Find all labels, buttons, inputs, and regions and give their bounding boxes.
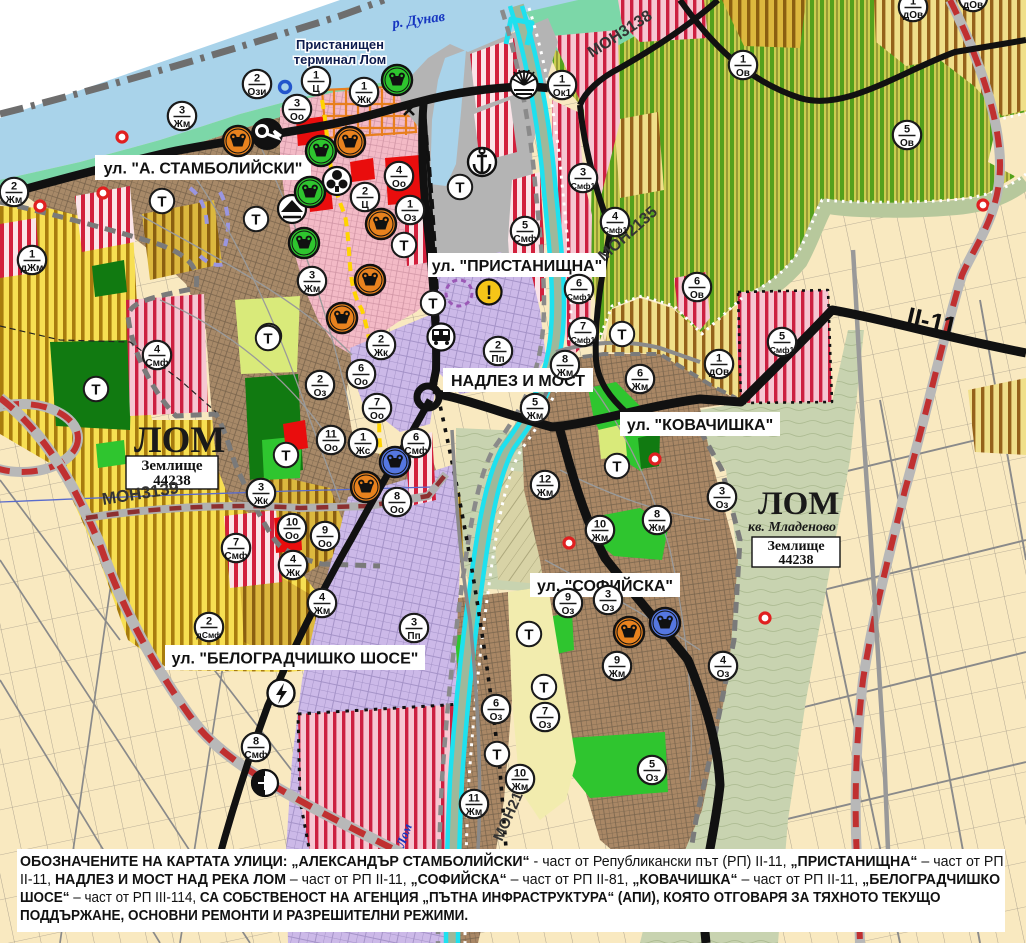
- svg-text:8: 8: [394, 491, 400, 503]
- svg-text:1: 1: [716, 353, 722, 365]
- svg-text:1: 1: [740, 54, 746, 66]
- svg-text:Оз: Оз: [490, 712, 503, 723]
- svg-text:Ц: Ц: [361, 200, 369, 211]
- svg-text:Жм: Жм: [631, 382, 648, 393]
- svg-text:ул. "А. СТАМБОЛИЙСКИ": ул. "А. СТАМБОЛИЙСКИ": [104, 158, 303, 177]
- svg-text:Смф1: Смф1: [571, 181, 596, 191]
- svg-text:5: 5: [522, 220, 528, 232]
- svg-text:Жм: Жм: [526, 411, 543, 422]
- svg-text:Т: Т: [492, 747, 501, 764]
- svg-text:Оо: Оо: [318, 539, 332, 550]
- svg-text:Жм: Жм: [536, 488, 553, 499]
- svg-text:терминал Лом: терминал Лом: [294, 52, 386, 67]
- svg-text:2: 2: [378, 334, 384, 346]
- svg-text:Оз: Оз: [717, 669, 730, 680]
- svg-text:Жм: Жм: [5, 195, 22, 206]
- svg-text:2: 2: [11, 181, 17, 193]
- svg-text:Оз: Оз: [646, 773, 659, 784]
- svg-text:6: 6: [637, 368, 643, 380]
- svg-text:44238: 44238: [779, 553, 814, 568]
- svg-text:Т: Т: [281, 448, 290, 465]
- svg-text:4: 4: [290, 554, 297, 566]
- svg-text:2: 2: [362, 186, 368, 198]
- svg-text:1: 1: [361, 81, 367, 93]
- svg-text:Смф: Смф: [244, 749, 267, 761]
- svg-text:8: 8: [253, 736, 259, 748]
- svg-text:Землище: Землище: [141, 458, 203, 474]
- svg-text:4: 4: [154, 344, 161, 356]
- svg-text:Оз: Оз: [716, 500, 729, 511]
- svg-text:9: 9: [614, 655, 620, 667]
- svg-text:Пп: Пп: [407, 631, 420, 642]
- svg-text:Жк: Жк: [373, 348, 389, 359]
- svg-text:3: 3: [179, 105, 185, 117]
- svg-text:11: 11: [468, 793, 480, 805]
- svg-text:3: 3: [294, 98, 300, 110]
- svg-text:3: 3: [580, 167, 586, 179]
- svg-text:Пп: Пп: [491, 354, 504, 365]
- svg-text:10: 10: [514, 768, 526, 780]
- svg-text:9: 9: [565, 592, 571, 604]
- svg-text:Т: Т: [455, 180, 464, 197]
- svg-text:Жм: Жм: [303, 284, 320, 295]
- svg-text:6: 6: [413, 432, 419, 444]
- svg-text:Т: Т: [91, 382, 100, 399]
- svg-text:2: 2: [206, 616, 212, 628]
- svg-text:Оз: Оз: [562, 606, 575, 617]
- svg-text:Жм: Жм: [173, 119, 190, 130]
- svg-text:5: 5: [532, 397, 538, 409]
- svg-text:Пристанищен: Пристанищен: [296, 37, 384, 52]
- svg-text:12: 12: [539, 474, 551, 486]
- svg-text:Смф1: Смф1: [770, 345, 795, 355]
- svg-text:3: 3: [719, 486, 725, 498]
- svg-text:Смф: Смф: [513, 233, 536, 245]
- svg-text:1: 1: [910, 0, 916, 8]
- svg-text:Ози: Ози: [248, 87, 267, 98]
- svg-text:ЛОМ: ЛОМ: [758, 486, 839, 522]
- svg-text:дЖм: дЖм: [21, 263, 44, 274]
- svg-text:Жм: Жм: [608, 669, 625, 680]
- svg-text:Т: Т: [524, 627, 533, 644]
- svg-text:Ц: Ц: [312, 84, 320, 95]
- svg-text:Смф: Смф: [224, 550, 247, 562]
- svg-text:Оз: Оз: [602, 603, 615, 614]
- svg-text:8: 8: [654, 509, 660, 521]
- svg-text:ул. "ПРИСТАНИЩНА": ул. "ПРИСТАНИЩНА": [432, 258, 603, 275]
- svg-text:Ок1: Ок1: [553, 88, 572, 99]
- svg-text:ОБОЗНАЧЕНИТЕ НА КАРТАТА УЛИЦИ:: ОБОЗНАЧЕНИТЕ НА КАРТАТА УЛИЦИ: „АЛЕКСАНД…: [20, 852, 1004, 870]
- svg-text:Т: Т: [428, 296, 437, 313]
- svg-text:4: 4: [612, 211, 619, 223]
- svg-text:5: 5: [779, 331, 785, 343]
- svg-text:4: 4: [720, 655, 727, 667]
- svg-text:3: 3: [605, 589, 611, 601]
- svg-text:2: 2: [254, 73, 260, 85]
- svg-text:4: 4: [396, 165, 403, 177]
- svg-text:6: 6: [694, 276, 700, 288]
- svg-text:ЛОМ: ЛОМ: [134, 420, 225, 461]
- svg-text:Смф1: Смф1: [571, 335, 596, 345]
- svg-text:7: 7: [542, 706, 548, 718]
- svg-text:Т: Т: [617, 327, 626, 344]
- svg-text:7: 7: [580, 321, 586, 333]
- svg-text:7: 7: [374, 397, 380, 409]
- svg-text:Смф: Смф: [145, 357, 168, 369]
- svg-text:Оо: Оо: [370, 411, 384, 422]
- svg-text:1: 1: [559, 74, 565, 86]
- svg-text:2: 2: [495, 340, 501, 352]
- svg-text:11: 11: [325, 429, 337, 441]
- svg-text:Т: Т: [157, 194, 166, 211]
- svg-text:Оо: Оо: [390, 505, 404, 516]
- svg-text:Оз: Оз: [314, 388, 327, 399]
- svg-text:Т: Т: [251, 212, 260, 229]
- svg-text:Оз: Оз: [404, 213, 417, 224]
- svg-text:Жм: Жм: [648, 523, 665, 534]
- svg-text:Т: Т: [263, 331, 272, 348]
- svg-text:Т: Т: [539, 680, 548, 697]
- svg-text:Жк: Жк: [253, 496, 269, 507]
- svg-text:10: 10: [594, 519, 606, 531]
- svg-text:3: 3: [411, 617, 417, 629]
- svg-text:Т: Т: [612, 459, 621, 476]
- svg-text:5: 5: [649, 759, 655, 771]
- svg-text:Оо: Оо: [324, 443, 338, 454]
- svg-text:ул. "КОВАЧИШКА": ул. "КОВАЧИШКА": [627, 417, 773, 434]
- svg-text:Жс: Жс: [355, 446, 371, 457]
- svg-text:Оо: Оо: [285, 531, 299, 542]
- svg-text:1: 1: [313, 70, 319, 82]
- svg-text:2: 2: [317, 374, 323, 386]
- svg-text:Жм: Жм: [556, 368, 573, 379]
- svg-text:6: 6: [358, 363, 364, 375]
- svg-text:дСмф: дСмф: [196, 630, 222, 640]
- svg-text:1: 1: [407, 199, 413, 211]
- svg-text:ШОСЕ“ – част от РП III-114, СА: ШОСЕ“ – част от РП III-114, СА СОБСТВЕНО…: [20, 888, 941, 905]
- svg-text:Жм: Жм: [313, 606, 330, 617]
- svg-text:Оз: Оз: [539, 720, 552, 731]
- svg-text:дОв: дОв: [709, 367, 729, 378]
- svg-text:6: 6: [493, 698, 499, 710]
- svg-text:Жк: Жк: [285, 568, 301, 579]
- svg-text:Ов: Ов: [900, 138, 914, 149]
- svg-text:Жм: Жм: [465, 807, 482, 818]
- svg-text:Т: Т: [399, 238, 408, 255]
- svg-text:1: 1: [360, 432, 366, 444]
- svg-text:Оо: Оо: [290, 112, 304, 123]
- svg-text:Смф1: Смф1: [567, 292, 592, 302]
- svg-text:II-11, НАДЛЕЗ И МОСТ НАД РЕКА: II-11, НАДЛЕЗ И МОСТ НАД РЕКА ЛОМ – част…: [20, 870, 1000, 888]
- svg-text:7: 7: [233, 537, 239, 549]
- svg-text:5: 5: [904, 124, 910, 136]
- svg-text:кв. Младеново: кв. Младеново: [748, 520, 836, 535]
- svg-text:Оо: Оо: [354, 377, 368, 388]
- svg-text:Жм: Жм: [511, 782, 528, 793]
- svg-text:3: 3: [309, 270, 315, 282]
- svg-text:Смф1: Смф1: [603, 225, 628, 235]
- svg-text:8: 8: [562, 354, 568, 366]
- svg-text:дОв: дОв: [903, 10, 923, 21]
- svg-text:Смф: Смф: [404, 445, 427, 457]
- svg-text:9: 9: [322, 525, 328, 537]
- svg-text:Жк: Жк: [356, 95, 372, 106]
- svg-text:1: 1: [29, 249, 35, 261]
- svg-text:4: 4: [319, 592, 326, 604]
- svg-text:3: 3: [258, 482, 264, 494]
- svg-text:10: 10: [286, 517, 298, 529]
- svg-text:Жм: Жм: [591, 533, 608, 544]
- svg-text:Землище: Землище: [767, 539, 824, 554]
- svg-text:6: 6: [576, 278, 582, 290]
- svg-text:!: !: [486, 283, 492, 304]
- svg-text:Ов: Ов: [736, 68, 750, 79]
- svg-text:ул. "БЕЛОГРАДЧИШКО ШОСЕ": ул. "БЕЛОГРАДЧИШКО ШОСЕ": [172, 650, 419, 667]
- svg-text:ПОДДЪРЖАНЕ, ОСНОВНИ РЕМОНТИ И: ПОДДЪРЖАНЕ, ОСНОВНИ РЕМОНТИ И РАЗРЕШИТЕЛ…: [20, 906, 468, 923]
- svg-text:Ов: Ов: [690, 290, 704, 301]
- svg-text:дОв: дОв: [963, 0, 983, 11]
- svg-text:Оо: Оо: [392, 179, 406, 190]
